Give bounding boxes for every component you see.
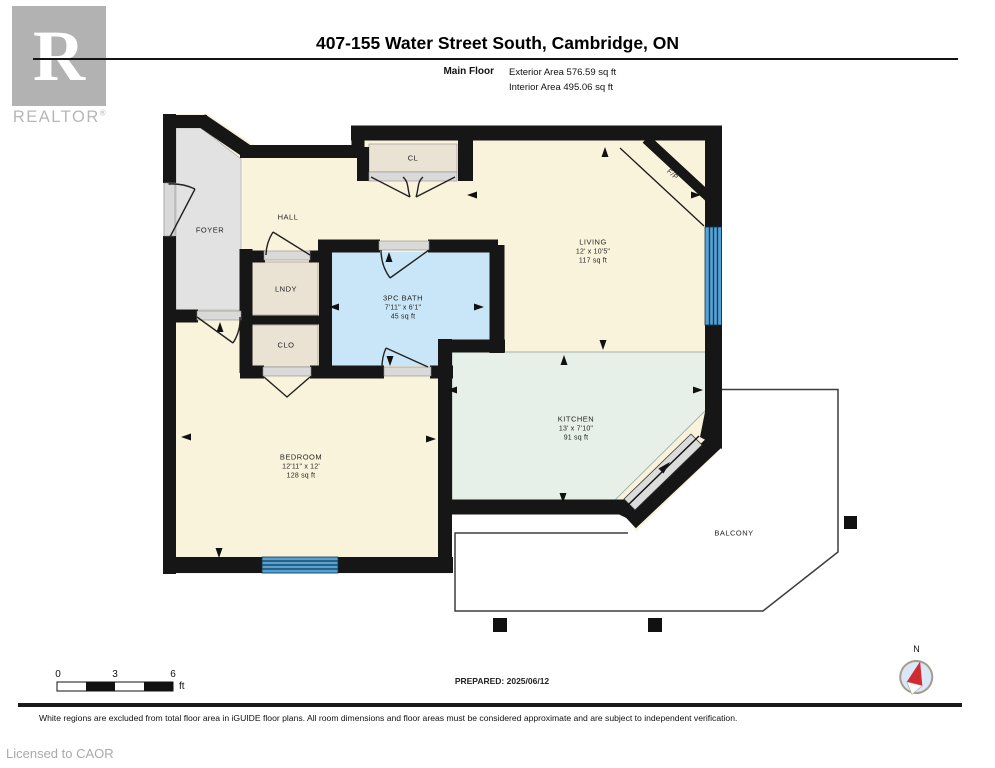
- licensed-to: Licensed to CAOR: [6, 746, 114, 761]
- label-laundry: LNDY: [275, 284, 297, 294]
- floor-plan-svg: [0, 0, 995, 768]
- label-kitchen: KITCHEN 13' x 7'10" 91 sq ft: [558, 414, 594, 442]
- label-balcony: BALCONY: [714, 528, 753, 538]
- label-living: LIVING 12' x 10'5" 117 sq ft: [576, 237, 610, 265]
- scale-unit: ft: [179, 681, 185, 692]
- scale-tick-3: 3: [112, 669, 118, 680]
- compass-north-label: N: [908, 644, 925, 654]
- label-hall: HALL: [278, 212, 299, 222]
- footer-divider: [18, 703, 962, 707]
- label-closet-cl: CL: [408, 153, 419, 163]
- scale-bar: [57, 682, 173, 691]
- scale-tick-0: 0: [55, 669, 61, 680]
- window-living-east: [705, 227, 722, 325]
- floor-plan-page: R REALTOR® 407-155 Water Street South, C…: [0, 0, 995, 768]
- scale-tick-6: 6: [170, 669, 176, 680]
- foyer-floor: [176, 128, 241, 310]
- label-bedroom: BEDROOM 12'11" x 12' 128 sq ft: [280, 452, 322, 480]
- window-bedroom-south: [262, 557, 338, 573]
- compass-icon: [896, 658, 935, 699]
- label-bath: 3PC BATH 7'11" x 6'1" 45 sq ft: [383, 293, 423, 321]
- disclaimer-text: White regions are excluded from total fl…: [39, 713, 737, 723]
- prepared-date: PREPARED: 2025/06/12: [402, 676, 602, 686]
- label-foyer: FOYER: [196, 225, 224, 235]
- label-closet-clo: CLO: [278, 340, 295, 350]
